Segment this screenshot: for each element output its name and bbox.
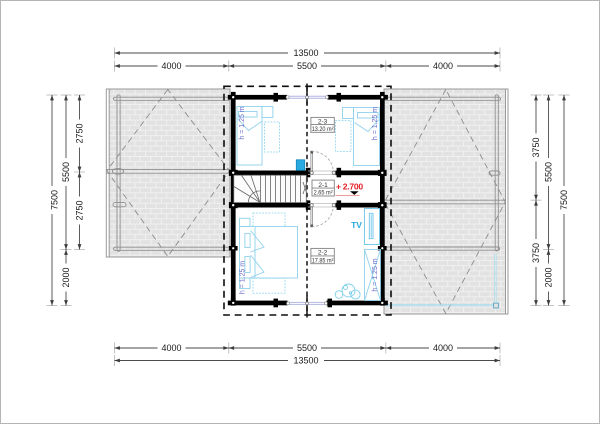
svg-text:h = 1.25 m: h = 1.25 m: [372, 107, 379, 140]
svg-text:2-3: 2-3: [318, 118, 328, 125]
svg-text:2-1: 2-1: [318, 182, 328, 189]
svg-text:3750: 3750: [531, 243, 541, 263]
svg-text:h = 1.25 m: h = 1.25 m: [240, 261, 247, 294]
svg-text:h = 1.25 m: h = 1.25 m: [239, 106, 246, 139]
svg-text:5500: 5500: [297, 61, 317, 71]
svg-text:5500: 5500: [61, 162, 71, 182]
svg-text:5500: 5500: [297, 343, 317, 353]
svg-text:2750: 2750: [75, 200, 85, 220]
svg-text:2-2: 2-2: [318, 250, 328, 257]
svg-text:7500: 7500: [50, 190, 60, 210]
svg-text:7500: 7500: [559, 190, 569, 210]
svg-text:3750: 3750: [531, 137, 541, 157]
svg-text:TV: TV: [351, 220, 362, 230]
svg-text:2.65 m²: 2.65 m²: [314, 191, 333, 197]
svg-text:5500: 5500: [544, 162, 554, 182]
svg-text:13500: 13500: [293, 48, 318, 58]
svg-text:2000: 2000: [61, 267, 71, 287]
svg-text:+ 2.700: + 2.700: [336, 181, 363, 191]
svg-text:h = 1.25 m: h = 1.25 m: [372, 258, 379, 291]
svg-text:17.85 m²: 17.85 m²: [312, 258, 334, 264]
svg-text:13500: 13500: [293, 356, 318, 366]
svg-text:4000: 4000: [433, 343, 453, 353]
svg-text:4000: 4000: [161, 61, 181, 71]
svg-text:2000: 2000: [544, 267, 554, 287]
svg-text:4000: 4000: [161, 343, 181, 353]
svg-text:4000: 4000: [433, 61, 453, 71]
svg-text:2750: 2750: [75, 123, 85, 143]
svg-text:13.20 m²: 13.20 m²: [312, 127, 334, 133]
